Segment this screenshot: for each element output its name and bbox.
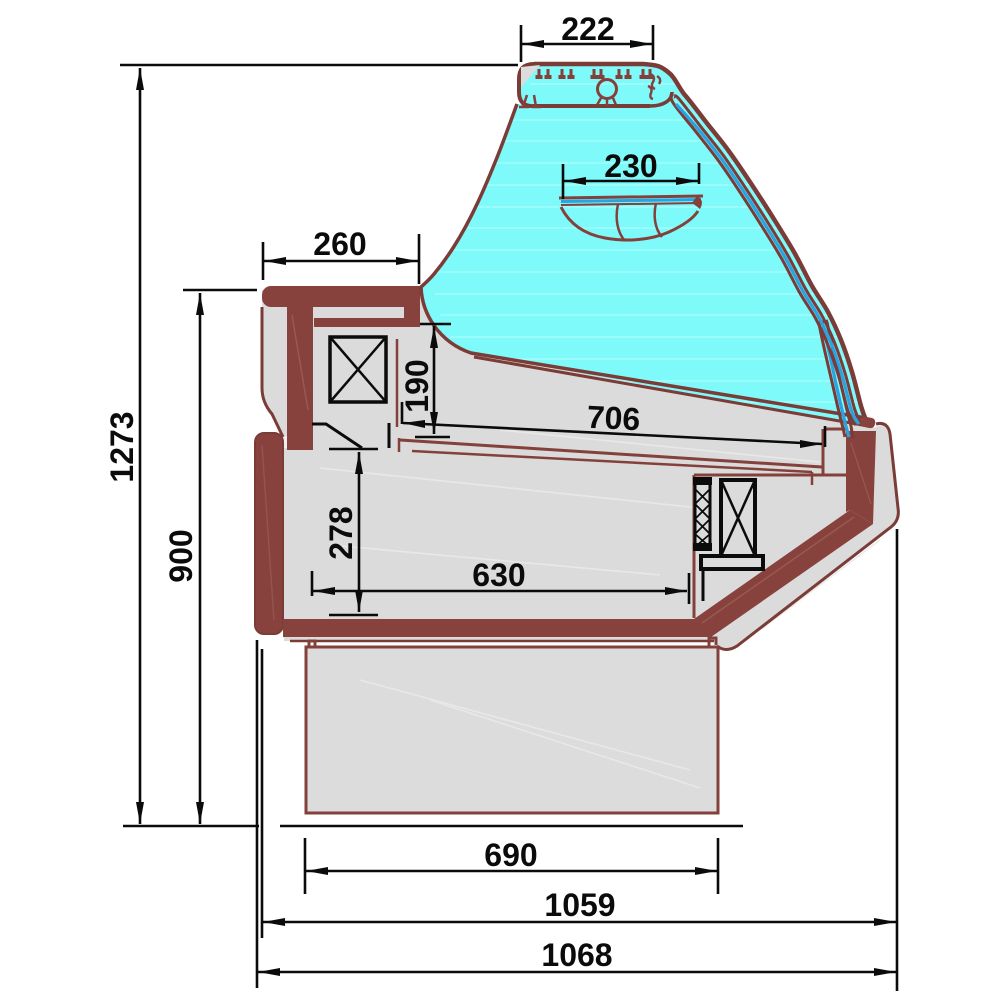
svg-text:706: 706 (586, 399, 641, 438)
svg-text:1059: 1059 (544, 887, 615, 923)
svg-text:630: 630 (472, 557, 525, 593)
svg-text:260: 260 (313, 226, 366, 262)
svg-text:1068: 1068 (541, 937, 612, 973)
svg-text:690: 690 (484, 837, 537, 873)
svg-text:1273: 1273 (104, 411, 140, 482)
svg-text:230: 230 (604, 148, 657, 184)
svg-text:190: 190 (399, 359, 435, 412)
svg-text:278: 278 (323, 506, 359, 559)
svg-text:222: 222 (561, 11, 614, 47)
svg-text:900: 900 (163, 529, 199, 582)
